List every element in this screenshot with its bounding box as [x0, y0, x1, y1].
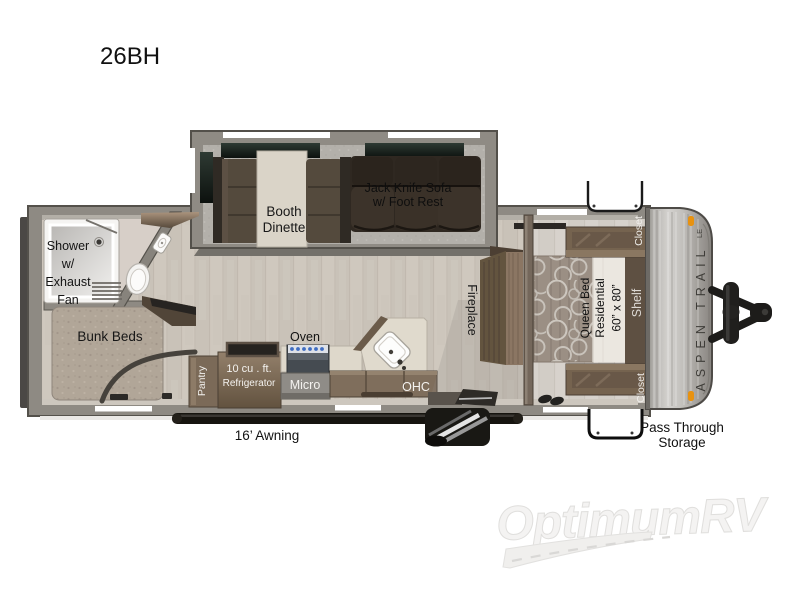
svg-text:w/: w/: [61, 257, 75, 271]
svg-text:16’ Awning: 16’ Awning: [235, 428, 300, 443]
svg-text:LE: LE: [695, 229, 704, 238]
svg-text:Dinette: Dinette: [263, 220, 306, 235]
svg-text:Refrigerator: Refrigerator: [223, 378, 276, 389]
svg-text:Fireplace: Fireplace: [465, 284, 479, 335]
svg-text:Jack Knife Sofa: Jack Knife Sofa: [365, 181, 452, 195]
svg-text:Shower: Shower: [47, 239, 89, 253]
svg-text:OHC: OHC: [402, 380, 430, 394]
svg-text:10 cu . ft.: 10 cu . ft.: [226, 363, 271, 375]
svg-text:Pantry: Pantry: [196, 365, 208, 396]
svg-text:Storage: Storage: [658, 435, 705, 450]
svg-text:Fan: Fan: [57, 293, 79, 307]
svg-text:Pass Through: Pass Through: [640, 420, 724, 435]
svg-text:w/ Foot Rest: w/ Foot Rest: [372, 195, 444, 209]
svg-text:26BH: 26BH: [100, 43, 160, 70]
svg-text:Bunk Beds: Bunk Beds: [77, 329, 143, 344]
svg-text:Queen Bed: Queen Bed: [578, 278, 592, 339]
svg-text:Closet: Closet: [633, 216, 645, 246]
svg-text:60” x 80”: 60” x 80”: [610, 284, 624, 331]
svg-text:ASPEN TRAIL: ASPEN TRAIL: [694, 244, 708, 391]
svg-text:Exhaust: Exhaust: [45, 275, 91, 289]
svg-text:Residential: Residential: [593, 278, 607, 337]
svg-text:Oven: Oven: [290, 330, 320, 344]
svg-text:Micro: Micro: [290, 378, 321, 392]
svg-text:Booth: Booth: [266, 204, 301, 219]
svg-text:Shelf: Shelf: [630, 288, 644, 317]
